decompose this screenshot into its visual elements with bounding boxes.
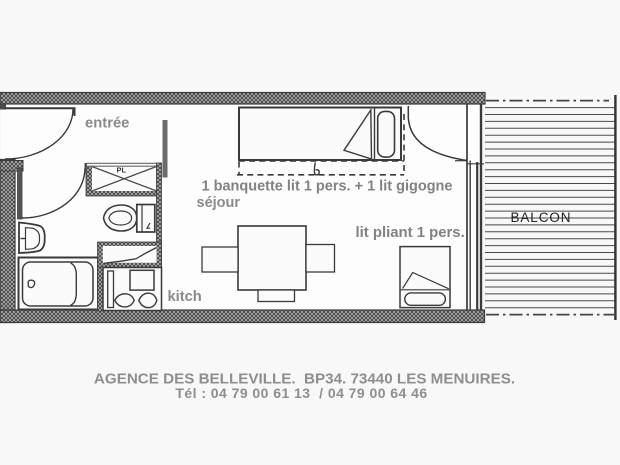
- svg-text:1 banquette lit 1 pers. + 1 li: 1 banquette lit 1 pers. + 1 lit gigogne: [202, 179, 453, 195]
- svg-text:Tél : 04 79 00 61 13 / 04 79: Tél : 04 79 00 61 13 / 04 79 00 64 46: [175, 385, 427, 401]
- svg-text:entrée: entrée: [85, 116, 129, 132]
- svg-text:PL: PL: [117, 166, 127, 175]
- svg-text:lit pliant 1 pers.: lit pliant 1 pers.: [356, 225, 465, 241]
- svg-text:kitch: kitch: [168, 289, 202, 305]
- svg-text:séjour: séjour: [197, 195, 241, 211]
- svg-text:BALCON: BALCON: [511, 210, 572, 225]
